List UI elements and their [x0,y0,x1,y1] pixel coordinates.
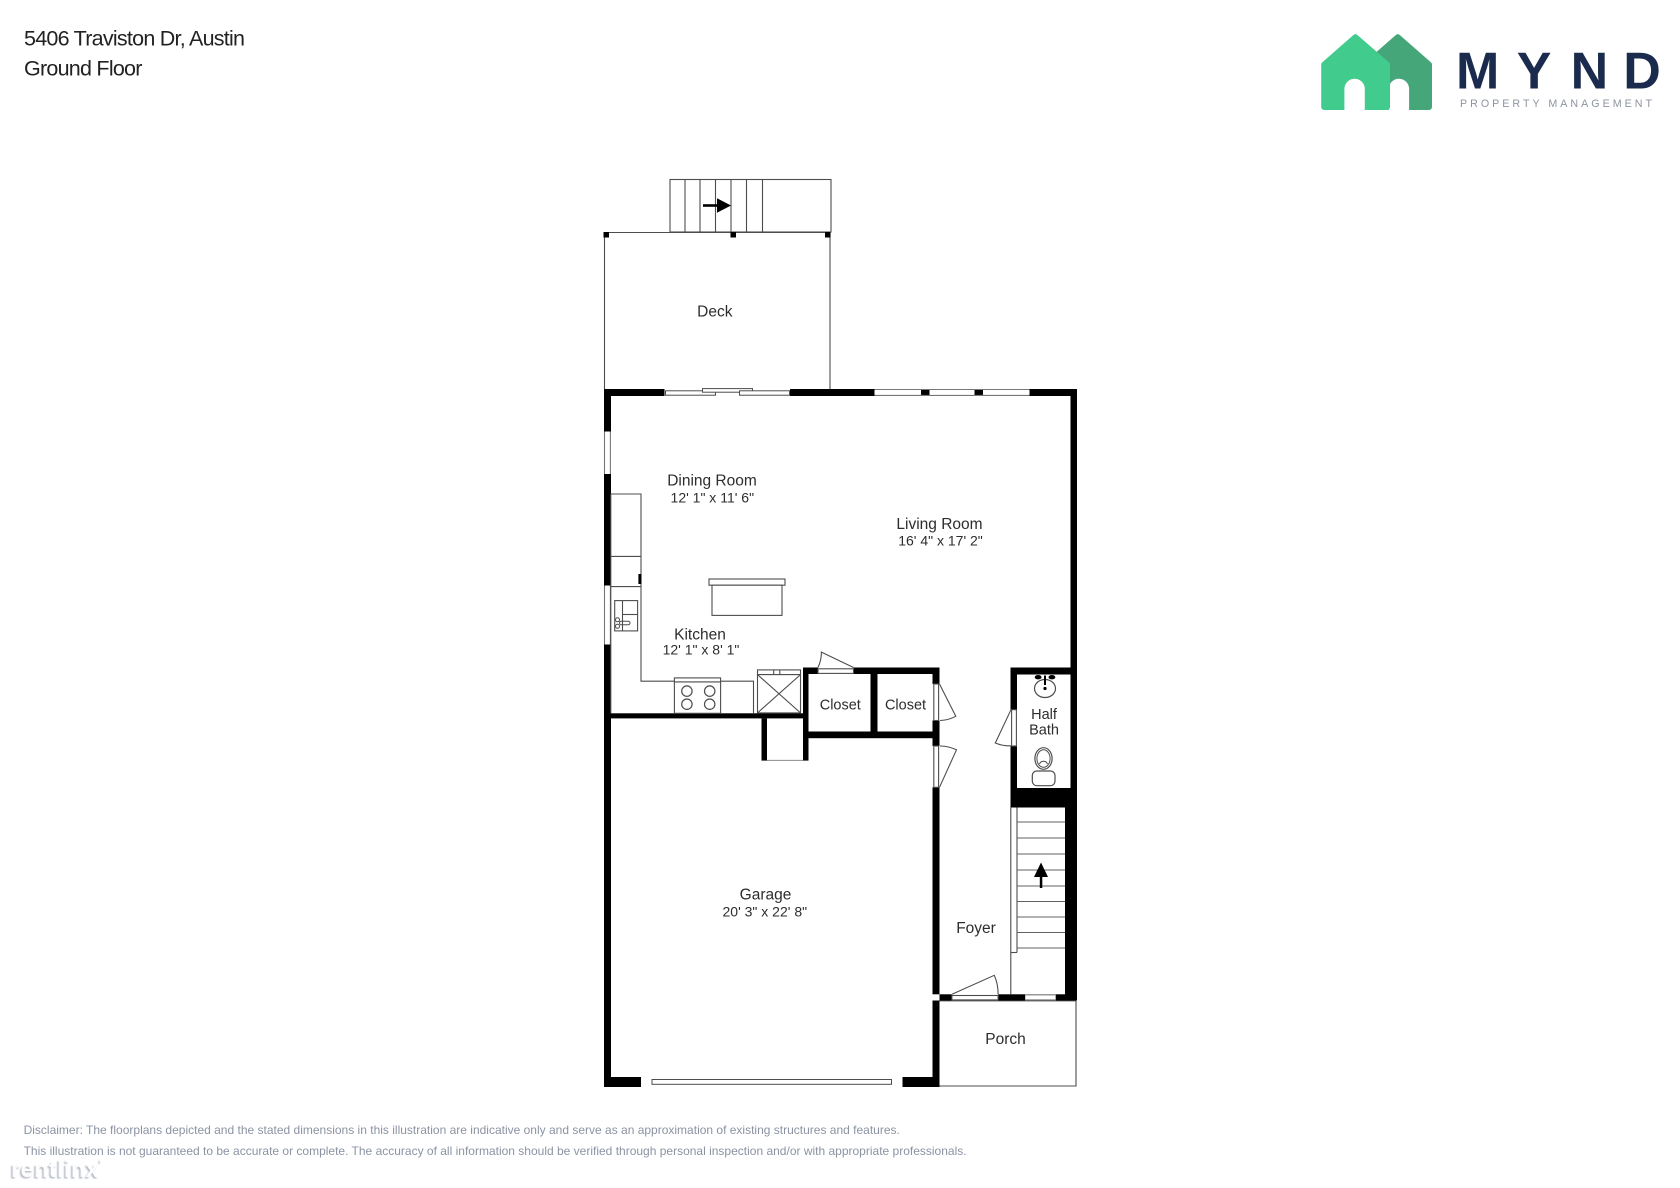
svg-text:20' 3" x 22' 8": 20' 3" x 22' 8" [723,904,808,920]
svg-text:Deck: Deck [697,303,733,320]
svg-text:Half: Half [1031,707,1058,723]
svg-text:5406 Traviston Dr, Austin: 5406 Traviston Dr, Austin [24,27,244,51]
svg-text:16' 4" x 17' 2": 16' 4" x 17' 2" [898,533,983,549]
svg-text:Closet: Closet [820,697,861,713]
svg-text:Dining Room: Dining Room [667,472,757,489]
svg-text:This illustration is not guara: This illustration is not guaranteed to b… [24,1144,967,1158]
svg-text:Foyer: Foyer [956,920,996,937]
svg-text:M: M [1456,43,1499,101]
svg-text:Bath: Bath [1029,723,1059,739]
svg-text:Porch: Porch [985,1031,1026,1048]
svg-text:Disclaimer: The floorplans dep: Disclaimer: The floorplans depicted and … [24,1123,900,1137]
svg-text:PROPERTY MANAGEMENT: PROPERTY MANAGEMENT [1460,98,1655,110]
svg-text:N: N [1571,43,1609,101]
svg-text:Ground Floor: Ground Floor [24,56,142,80]
svg-text:12' 1" x 11' 6": 12' 1" x 11' 6" [671,490,755,506]
svg-text:Living Room: Living Room [896,516,982,533]
svg-text:Garage: Garage [740,887,792,904]
svg-text:Closet: Closet [885,697,926,713]
svg-text:12' 1" x 8' 1": 12' 1" x 8' 1" [663,642,740,658]
svg-text:Y: Y [1517,43,1552,101]
svg-text:D: D [1623,43,1661,101]
